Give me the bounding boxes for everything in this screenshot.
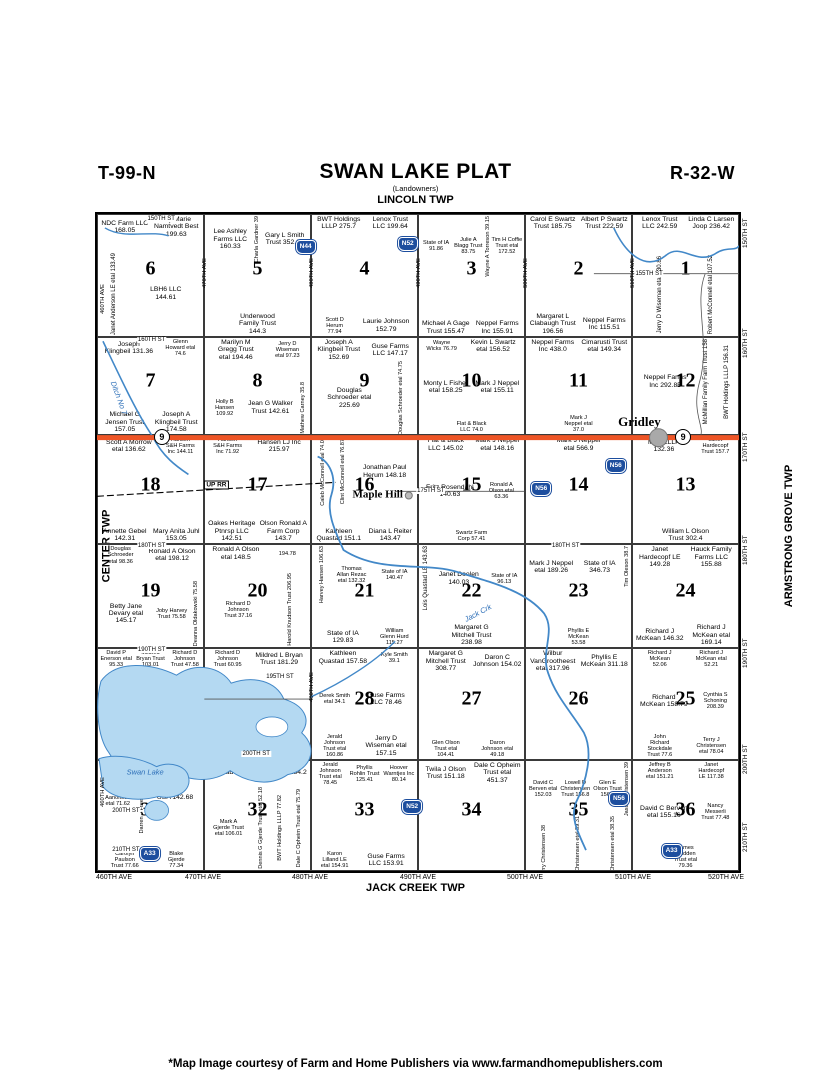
parcel-list: Twila J Olson Trust 151.18Dale C Opheim … (420, 762, 523, 869)
parcel-label: Douglas Schroeder etal 225.69 (325, 387, 373, 409)
parcel-label: Twila J Olson Trust 151.18 (422, 766, 470, 781)
parcel-label: Karon Lilland LE etal 154.91 (319, 851, 351, 869)
parcel-list: Neppel Farms Inc 292.85McMillan Family F… (634, 339, 737, 434)
parcel-label: Daron C Johnson 154.02 (473, 654, 521, 669)
parcel-label: Michael A Gage Trust 155.47 (422, 320, 470, 335)
parcel-label: Jerald Johnson Trust etal 160.86 (319, 734, 351, 758)
section-3: 3State of IA 91.86Julie A Blagg Trust 83… (418, 214, 525, 337)
parcel-label: James Madden Trust etal 79.36 (670, 845, 702, 869)
section-35: 35David C Berven etal 152.03Lowell D Chr… (525, 760, 632, 871)
parcel-label: Harvey Hansen 106.63 (319, 546, 325, 603)
parcel-label: John Richard Stockdale Trust 77.6 (644, 734, 676, 758)
edge-street-label: 150TH ST (742, 218, 749, 248)
parcel-label: Carol E Swartz Trust 185.75 (529, 216, 577, 231)
parcel-list: Richard D Johnson Trust 60.95Mildred L B… (206, 650, 309, 758)
parcel-label: Ronald A Olson etal 198.12 (148, 548, 196, 563)
parcel-label: Joseph A Klingbeil Trust 174.58 (152, 411, 200, 433)
section-36: 36Jeffrey B Anderson etal 151.21Janet Ha… (632, 760, 739, 871)
parcel-label: Joy Marie Namtvedt Best 199.63 (152, 216, 200, 238)
parcel-label: Paul A Enerson etal 127.56 (126, 743, 174, 758)
parcel-label: Hauck Family Farms LLC 155.88 (687, 546, 735, 568)
parcel-label: Richard J McKean 52.06 (644, 650, 676, 668)
parcel-list: Joseph Klingbeil 131.36Glenn Howard etal… (99, 339, 202, 434)
parcel-label: LBH6 LLC 144.61 (142, 286, 190, 301)
section-24: 24Janet Hardecopf LE 149.28Hauck Family … (632, 544, 739, 648)
section-15: 15Flat & Black LLC 145.02Mark J Neppel e… (418, 435, 525, 544)
parcel-label: Mark A Gjerde Trust etal 106.01 (213, 819, 245, 837)
parcel-label: Jean G Walker Trust 142.61 (246, 400, 294, 415)
parcel-label: Holly B Hansen 109.92 (209, 399, 241, 417)
parcel-label: Monty L Fisher etal 158.25 (422, 380, 470, 395)
parcel-label: Margaret G Mitchell Trust 308.77 (422, 650, 470, 672)
parcel-label: Tim Oleson 38.7 (624, 546, 630, 587)
parcel-label: Mathew Carney 35.8 (300, 382, 306, 434)
parcel-label: Underwood Family Trust 144.3 (233, 313, 281, 335)
parcel-label: Phyllis Rohlin Trust 125.41 (349, 765, 381, 783)
parcel-label: Neppel Farms Inc 155.91 (473, 320, 521, 335)
parcel-label: Joby Harvey Trust 75.58 (156, 608, 188, 620)
parcel-label: Janet Hardecopf LE 117.38 (695, 762, 727, 780)
parcel-label: Joseph A Klingbeil Trust 152.69 (315, 339, 363, 361)
parcel-list: Wilbur VanGrootheest etal 317.96Phyllis … (527, 650, 630, 758)
parcel-list: Ronald A Olson etal 148.5194.78Richard D… (206, 546, 309, 646)
parcel-label: Julie A Blagg Trust 83.75 (452, 237, 484, 255)
parcel-label: Neppel Farms Inc 438.0 (529, 339, 577, 354)
parcel-label: Kyle Smith 39.1 (378, 652, 410, 664)
section-26: 26Wilbur VanGrootheest etal 317.96Phylli… (525, 648, 632, 760)
section-19: 19Douglas Schroeder etal 98.36Ronald A O… (97, 544, 204, 648)
parcel-label: Lenox Trust LLC 199.64 (366, 216, 414, 231)
edge-avenue-label: 470TH AVE (185, 874, 221, 881)
parcel-label: Fritz Rosendahl 140.63 (426, 484, 474, 499)
section-33: 33Jerald Johnson Trust etal 78.45Phyllis… (311, 760, 418, 871)
section-6: 6NDC Farm LLC 168.05Joy Marie Namtvedt B… (97, 214, 204, 337)
parcel-label: Richard D Johnson Trust 37.16 (222, 601, 254, 619)
parcel-label: Douglas Schroeder etal 98.36 (105, 546, 137, 564)
parcel-label: Diana L Reiter 143.47 (366, 528, 414, 543)
section-9: 9Joseph A Klingbeil Trust 152.69Guse Far… (311, 337, 418, 436)
parcel-list: Brian Aanonson etal 71.62Darren J Freema… (99, 762, 202, 869)
parcel-label: Wayne Wicks 76.79 (426, 340, 458, 352)
section-5: 5Lee Ashley Farms LLC 160.33Charla Gardn… (204, 214, 311, 337)
south-township-label: JACK CREEK TWP (0, 882, 831, 894)
parcel-label: Lenox Trust LLC 242.59 (636, 216, 684, 231)
parcel-list: Lee Ashley Farms LLC 160.33Charla Gardne… (206, 216, 309, 335)
edge-street-label: 170TH ST (742, 432, 749, 462)
parcel-label: Kevin L Swartz etal 156.52 (469, 339, 517, 354)
parcel-label: Janet Doolen 140.03 (435, 571, 483, 586)
edge-street-label: 180TH ST (742, 535, 749, 565)
edge-street-label: 210TH ST (742, 822, 749, 852)
parcel-label: Cimarusti Trust etal 149.34 (580, 339, 628, 354)
parcel-label: Oakes Heritage Ptnrsp LLC 142.51 (208, 520, 256, 542)
parcel-label: Harold Knudson Trust 206.95 (287, 573, 293, 646)
parcel-label: William L Olson Trust 302.4 (661, 528, 709, 543)
parcel-label: Mary Anita Juhl 153.05 (152, 528, 200, 543)
parcel-label: Jerald Johnson Trust etal 78.45 (314, 762, 346, 786)
parcel-label: Ronald A Olson etal 148.5 (212, 546, 260, 561)
parcel-label: Lois Quastad LE 143.63 (423, 546, 429, 610)
parcel-label: Janet Hardecopf LE 149.28 (636, 546, 684, 568)
parcel-list: Douglas Schroeder etal 98.36Ronald A Ols… (99, 546, 202, 646)
parcel-label: R Schacherer Trust etal 154.2 (259, 762, 307, 777)
parcel-list: State of IA 91.86Julie A Blagg Trust 83.… (420, 216, 523, 335)
parcel-label: Cory Christensen etal 39.31 (575, 816, 581, 871)
parcel-label: Janet Anderson LE etal 133.49 (111, 253, 117, 335)
parcel-label: Robert McConnell etal 107.52 (708, 255, 714, 334)
section-10: 10Wayne Wicks 76.79Kevin L Swartz etal 1… (418, 337, 525, 436)
parcel-list: Scott A Morrow etal 136.62Hansen S&H Far… (99, 437, 202, 542)
parcel-label: Lowell D Christensen Trust 156.8 (559, 780, 591, 798)
parcel-label: Hansen S&H Farms Inc 71.92 (212, 437, 244, 455)
parcel-label: Richard J McKean 146.32 (636, 628, 684, 643)
parcel-list: Mark J Neppel etal 189.26State of IA 346… (527, 546, 630, 646)
parcel-list: Mark J Neppel etal 566.9 (527, 437, 630, 542)
parcel-label: Mark J Neppel etal 148.16 (473, 437, 521, 452)
parcel-list: Flat & Black LLC 145.02Mark J Neppel eta… (420, 437, 523, 542)
parcel-label: Guse Farms LLC 78.46 (362, 692, 410, 707)
parcel-label: Neppel Farms Inc 115.51 (580, 317, 628, 332)
parcel-label: Douglas Schroeder etal 74.75 (398, 361, 404, 435)
section-22: 22Lois Quastad LE 143.63Janet Doolen 140… (418, 544, 525, 648)
parcel-list: Caleb McConnell etal 74.03Clint McConnel… (313, 437, 416, 542)
parcel-label: Glen E Olson Trust 156.6 (592, 780, 624, 798)
parcel-list: Janet Hardecopf LE 149.28Hauck Family Fa… (634, 546, 737, 646)
section-11: 11Neppel Farms Inc 438.0Cimarusti Trust … (525, 337, 632, 436)
section-16: 16Caleb McConnell etal 74.03Clint McConn… (311, 435, 418, 544)
parcel-label: BWT Holdings LLLP 275.7 (315, 216, 363, 231)
edge-avenue-label: 500TH AVE (507, 874, 543, 881)
section-28: 28Kathleen Quastad 157.58Kyle Smith 39.1… (311, 648, 418, 760)
parcel-list: Lenox Trust LLC 242.59Linda C Larsen Joo… (634, 216, 737, 335)
parcel-label: Jason Christensen 39 (624, 762, 630, 816)
parcel-label: Terry Christensen etal 38.35 (610, 816, 616, 871)
parcel-label: Glen Olson Trust etal 104.41 (430, 740, 462, 758)
section-grid: 6NDC Farm LLC 168.05Joy Marie Namtvedt B… (97, 214, 739, 871)
parcel-label: Mark J Neppel etal 566.9 (554, 437, 602, 452)
parcel-label: Kathleen Quastad 154.58 (208, 762, 256, 777)
section-25: 25Richard J McKean 52.06Richard J McKean… (632, 648, 739, 760)
parcel-label: Phyllis E McKean 311.18 (580, 654, 628, 669)
section-27: 27Margaret G Mitchell Trust 308.77Daron … (418, 648, 525, 760)
parcel-label: Laurie Johnson 152.79 (362, 318, 410, 333)
parcel-label: Jerry D Wiseman etal 157.15 (362, 735, 410, 757)
plat-map-page: T-99-N SWAN LAKE PLAT (Landowners) LINCO… (0, 0, 831, 1080)
parcel-label: Deanna Oldakowski 75.58 (193, 581, 199, 646)
parcel-label: Phyllis E McKean 53.58 (563, 628, 595, 646)
section-21: 21Harvey Hansen 106.63Thomas Allan Rezac… (311, 544, 418, 648)
parcel-label: Guse Farms LLC 147.17 (366, 343, 414, 358)
parcel-label: Dennis G Gjerde Trust etal 52.18 (258, 787, 264, 869)
parcel-label: Wilbur VanGrootheest etal 317.96 (529, 650, 577, 672)
parcel-label: Richard J McKean etal 52.21 (695, 650, 727, 668)
parcel-label: Derek Smith etal 34.1 (319, 693, 351, 705)
section-13: 13MJN LLLP 132.36Janet Hardecopf Trust 1… (632, 435, 739, 544)
parcel-label: Clint McConnell etal 76.87 (340, 439, 346, 504)
parcel-label: State of IA 346.73 (575, 560, 623, 575)
plat-map: 6NDC Farm LLC 168.05Joy Marie Namtvedt B… (95, 212, 741, 873)
section-20: 20Ronald A Olson etal 148.5194.78Richard… (204, 544, 311, 648)
parcel-list: Hansen S&H Farms Inc 71.92Hansen LJ Inc … (206, 437, 309, 542)
parcel-label: Thomas Allan Rezac etal 132.32 (336, 566, 368, 584)
parcel-label: Daron Johnson etal 49.18 (481, 740, 513, 758)
section-14: 14Mark J Neppel etal 566.9 (525, 435, 632, 544)
edge-avenue-label: 460TH AVE (96, 874, 132, 881)
credit-line: *Map Image courtesy of Farm and Home Pub… (0, 1058, 831, 1070)
parcel-label: Jerry Christensen 38 (541, 825, 547, 871)
parcel-label: Michael G Jensen Trust 157.05 (101, 411, 149, 433)
parcel-label: Scott D Herum 77.94 (319, 317, 351, 335)
section-32: 32Kathleen Quastad 154.58R Schacherer Tr… (204, 760, 311, 871)
parcel-label: Hansen S&H Farms Inc 144.11 (164, 437, 196, 455)
parcel-label: Kathleen Quastad 151.1 (315, 528, 363, 543)
parcel-label: Guse Farms LLC 153.91 (362, 853, 410, 868)
parcel-label: Lee Ashley Farms LLC 160.33 (206, 228, 254, 250)
parcel-label: Brian Aanonson etal 71.62 (102, 789, 134, 807)
parcel-label: Mildred Bryan Trust 103.01 (135, 650, 167, 668)
edge-street-label: 160TH ST (742, 328, 749, 358)
parcel-label: Cynthia S Schoning 208.39 (699, 692, 731, 710)
parcel-label: Flat & Black LLC 145.02 (422, 437, 470, 452)
parcel-label: Jonathan Paul Herum 148.18 (360, 464, 408, 479)
edge-avenue-label: 520TH AVE (708, 874, 744, 881)
township-range-east: R-32-W (670, 163, 735, 184)
section-12: 12Neppel Farms Inc 292.85McMillan Family… (632, 337, 739, 436)
parcel-list: Carol E Swartz Trust 185.75Albert P Swar… (527, 216, 630, 335)
parcel-label: Kathleen Quastad 157.58 (319, 650, 367, 665)
parcel-label: Joseph Klingbeil 131.36 (105, 341, 153, 356)
page-subtitle: (Landowners) (0, 184, 831, 193)
section-2: 2Carol E Swartz Trust 185.75Albert P Swa… (525, 214, 632, 337)
parcel-list: David P Enerson etal 95.33Mildred Bryan … (99, 650, 202, 758)
parcel-label: Jerald Johnson Trust etal 145.29 (233, 736, 281, 758)
parcel-label: Terry J Christensen etal 78.04 (695, 737, 727, 755)
parcel-label: Jerry D Wiseman etal 130.86 (657, 256, 663, 333)
edge-avenue-label: 480TH AVE (292, 874, 328, 881)
section-29: 29Richard D Johnson Trust 60.95Mildred L… (204, 648, 311, 760)
section-1: 1Lenox Trust LLC 242.59Linda C Larsen Jo… (632, 214, 739, 337)
section-4: 4BWT Holdings LLLP 275.7Lenox Trust LLC … (311, 214, 418, 337)
east-township-label: ARMSTRONG GROVE TWP (783, 465, 795, 607)
edge-street-label: 200TH ST (742, 744, 749, 774)
parcel-label: NDC Farm LLC 168.05 (101, 220, 149, 235)
parcel-label: Margaret L Clabaugh Trust 196.56 (529, 313, 577, 335)
parcel-label: Glenn Howard etal 74.6 (164, 339, 196, 357)
parcel-list: Kathleen Quastad 154.58R Schacherer Trus… (206, 762, 309, 869)
parcel-label: MJN LLLP 132.36 (640, 439, 688, 454)
section-8: 8Marilyn M Gregg Trust etal 194.46Jerry … (204, 337, 311, 436)
parcel-label: Scott A Morrow etal 136.62 (105, 439, 153, 454)
parcel-label: Blake Gjerde 77.34 (160, 851, 192, 869)
parcel-label: 194.78 (271, 551, 303, 557)
edge-avenue-label: 490TH AVE (400, 874, 436, 881)
parcel-list: David C Berven etal 152.03Lowell D Chris… (527, 762, 630, 869)
parcel-label: Charla Gardner 39 (254, 216, 260, 262)
parcel-label: Wayne A Torreson 39.15 (485, 216, 491, 277)
parcel-list: Margaret G Mitchell Trust 308.77Daron C … (420, 650, 523, 758)
parcel-list: MJN LLLP 132.36Janet Hardecopf Trust 157… (634, 437, 737, 542)
parcel-label: Dale C Opheim Trust etal 451.37 (473, 762, 521, 784)
edge-street-label: 190TH ST (742, 638, 749, 668)
parcel-label: Richard J McKean etal 169.14 (687, 624, 735, 646)
parcel-list: Lois Quastad LE 143.63Janet Doolen 140.0… (420, 546, 523, 646)
section-34: 34Twila J Olson Trust 151.18Dale C Ophei… (418, 760, 525, 871)
parcel-label: BWT Holdings LLLP 77.82 (277, 795, 283, 861)
parcel-list: Richard J McKean 52.06Richard J McKean e… (634, 650, 737, 758)
parcel-label: Nancy Messerli Trust 77.48 (699, 803, 731, 821)
parcel-label: Albert P Swartz Trust 222.59 (580, 216, 628, 231)
parcel-list: NDC Farm LLC 168.05Joy Marie Namtvedt Be… (99, 216, 202, 335)
section-23: 23Mark J Neppel etal 189.26State of IA 3… (525, 544, 632, 648)
parcel-label: Annette Gebel 142.31 (101, 528, 149, 543)
parcel-label: McMillan Family Farm Trust 158 (703, 339, 709, 424)
parcel-label: Mark J Neppel etal 155.11 (473, 380, 521, 395)
parcel-label: Richard D Johnson Trust 47.58 (169, 650, 201, 668)
parcel-label: Swartz Farm Corp 57.41 (456, 530, 488, 542)
section-17: 17Hansen S&H Farms Inc 71.92Hansen LJ In… (204, 435, 311, 544)
parcel-label: Marilyn M Gregg Trust etal 194.46 (212, 339, 260, 361)
parcel-label: State of IA 140.47 (379, 569, 411, 581)
parcel-label: David C Berven etal 152.03 (527, 780, 559, 798)
section-30: 30David P Enerson etal 95.33Mildred Brya… (97, 648, 204, 760)
parcel-list: Kathleen Quastad 157.58Kyle Smith 39.1De… (313, 650, 416, 758)
parcel-label: Richard McKean 158.79 (640, 694, 688, 709)
parcel-label: State of IA 129.83 (319, 630, 367, 645)
parcel-list: Jerald Johnson Trust etal 78.45Phyllis R… (313, 762, 416, 869)
north-township-label: LINCOLN TWP (0, 194, 831, 206)
parcel-label: Dale C Opheim Trust etal 75.79 (296, 789, 302, 867)
parcel-list: Wayne Wicks 76.79Kevin L Swartz etal 156… (420, 339, 523, 434)
parcel-label: State of IA 96.13 (488, 573, 520, 585)
parcel-list: Joseph A Klingbeil Trust 152.69Guse Farm… (313, 339, 416, 434)
parcel-label: Ronald A Olson etal 63.36 (485, 482, 517, 500)
parcel-label: Hansen LJ Inc 215.97 (255, 439, 303, 454)
parcel-label: BWT Holdings LLLP 156.31 (724, 345, 730, 419)
parcel-list: Neppel Farms Inc 438.0Cimarusti Trust et… (527, 339, 630, 434)
parcel-label: Carolyn Paulson Trust 77.66 (109, 851, 141, 869)
parcel-list: Marilyn M Gregg Trust etal 194.46Jerry D… (206, 339, 309, 434)
parcel-label: Betty Jane Devary etal 145.17 (102, 603, 150, 625)
parcel-label: USA 142.68 (151, 794, 199, 801)
parcel-label: Janet Hardecopf Trust 157.7 (699, 437, 731, 455)
parcel-label: Darren J Freeman etal 74.39 (139, 762, 145, 834)
parcel-label: Mark J Neppel etal 189.26 (527, 560, 575, 575)
parcel-label: Hoover Warntjes Inc 80.14 (383, 765, 415, 783)
parcel-label: Richard D Johnson Trust 60.95 (212, 650, 244, 668)
parcel-label: Caleb McConnell etal 74.03 (320, 437, 326, 506)
parcel-label: Linda C Larsen Joop 236.42 (687, 216, 735, 231)
parcel-label: Mark J Neppel etal 37.0 (563, 415, 595, 433)
parcel-label: Gary L Smith Trust 352.06 (261, 232, 309, 247)
parcel-label: Tim H Coffie Trust etal 172.52 (491, 237, 523, 255)
parcel-label: David P Enerson etal 95.33 (100, 650, 132, 668)
edge-avenue-label: 510TH AVE (615, 874, 651, 881)
parcel-label: Flat & Black LLC 74.0 (456, 421, 488, 433)
parcel-list: Harvey Hansen 106.63Thomas Allan Rezac e… (313, 546, 416, 646)
parcel-label: Margaret G Mitchell Trust 238.98 (447, 624, 495, 646)
section-18: 18Scott A Morrow etal 136.62Hansen S&H F… (97, 435, 204, 544)
section-7: 7Joseph Klingbeil 131.36Glenn Howard eta… (97, 337, 204, 436)
parcel-label: Jerry D Wiseman etal 97.23 (271, 341, 303, 359)
parcel-label: William Glenn Hurd 115.27 (378, 628, 410, 646)
section-31: 31Brian Aanonson etal 71.62Darren J Free… (97, 760, 204, 871)
parcel-label: Jeffrey B Anderson etal 151.21 (644, 762, 676, 780)
parcel-list: Jeffrey B Anderson etal 151.21Janet Hard… (634, 762, 737, 869)
parcel-label: Mildred L Bryan Trust 181.29 (255, 652, 303, 667)
parcel-label: Neppel Farms Inc 292.85 (641, 374, 689, 389)
parcel-label: David C Berven etal 155.16 (640, 805, 688, 820)
parcel-label: Olson Ronald A Farm Corp 143.7 (259, 520, 307, 542)
parcel-label: State of IA 91.86 (420, 240, 452, 252)
parcel-list: BWT Holdings LLLP 275.7Lenox Trust LLC 1… (313, 216, 416, 335)
